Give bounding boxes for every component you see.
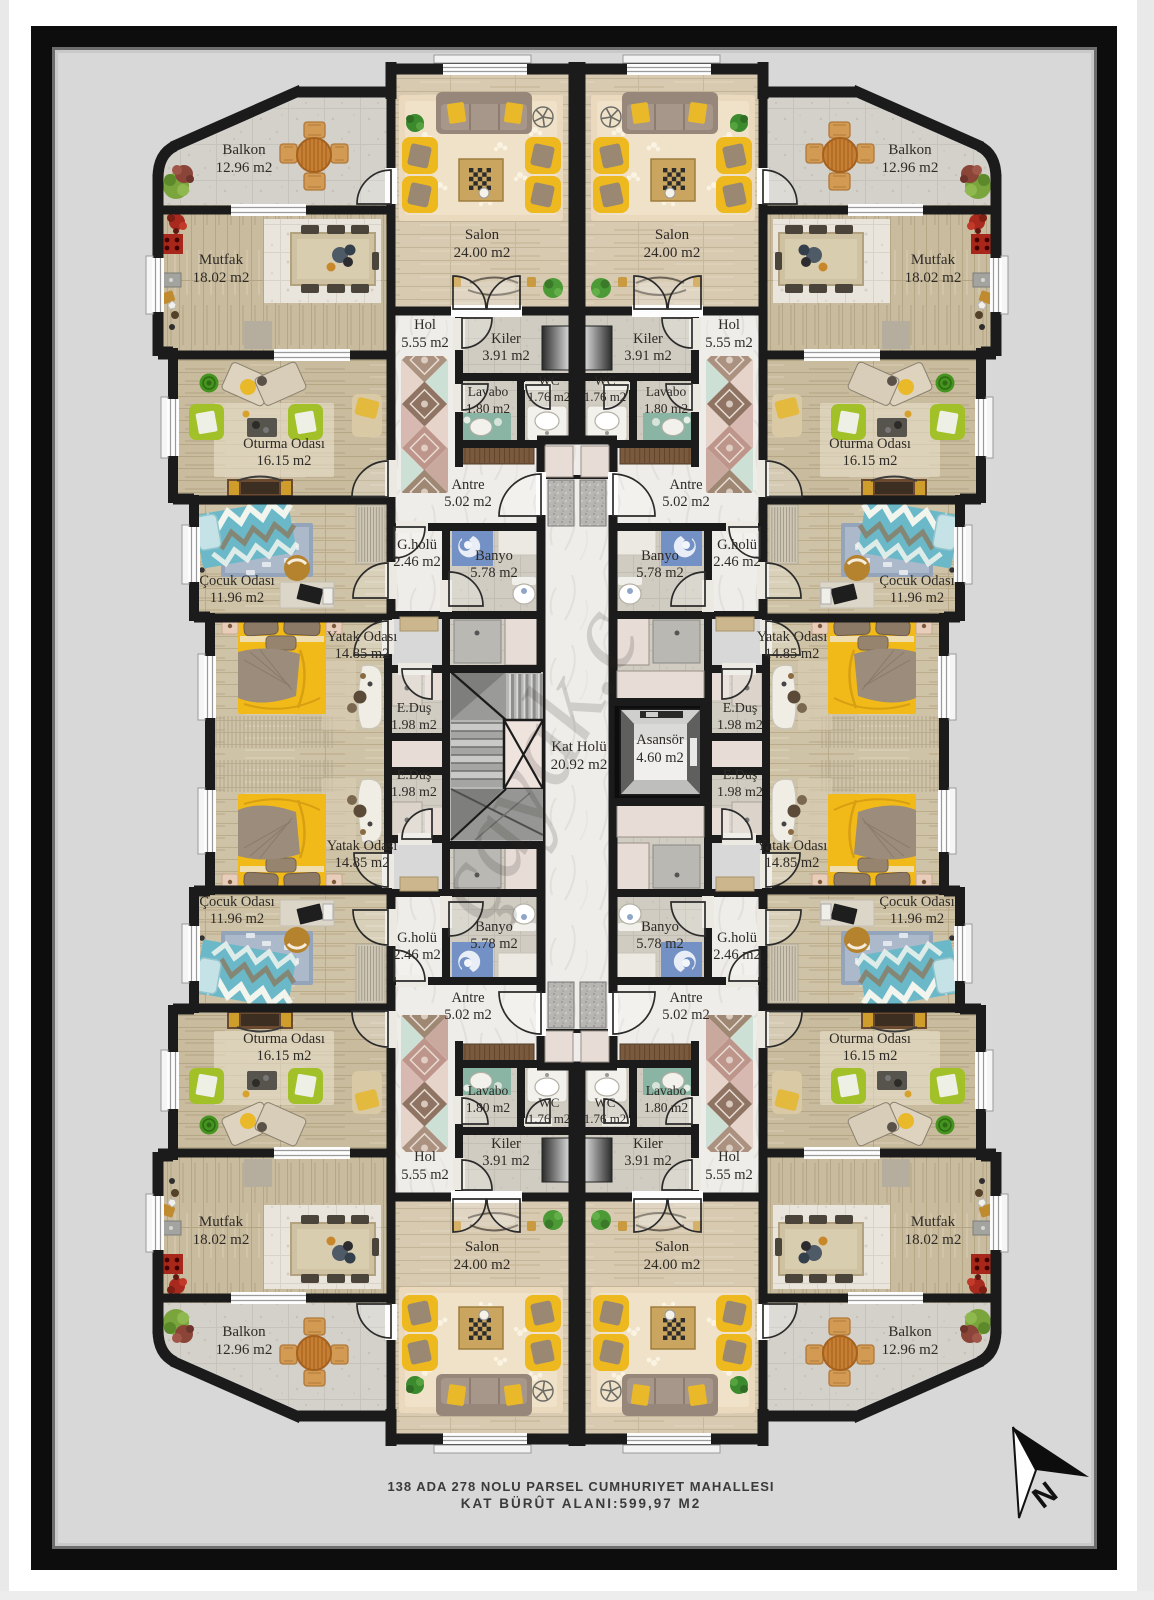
svg-text:Oturma Odası: Oturma Odası bbox=[829, 1031, 911, 1047]
svg-text:Balkon: Balkon bbox=[222, 142, 266, 158]
svg-text:Oturma Odası: Oturma Odası bbox=[243, 436, 325, 452]
svg-text:14.85 m2: 14.85 m2 bbox=[335, 855, 390, 871]
svg-text:16.15 m2: 16.15 m2 bbox=[843, 453, 898, 469]
svg-text:Hol: Hol bbox=[718, 317, 740, 333]
svg-text:138 ADA 278 NOLU PARSEL CUMHUR: 138 ADA 278 NOLU PARSEL CUMHURIYET MAHAL… bbox=[387, 1479, 774, 1494]
svg-text:11.96 m2: 11.96 m2 bbox=[210, 911, 264, 927]
svg-text:5.02 m2: 5.02 m2 bbox=[444, 1007, 492, 1023]
svg-text:1.76 m2: 1.76 m2 bbox=[584, 1111, 627, 1126]
svg-text:Hol: Hol bbox=[718, 1149, 740, 1165]
svg-text:Antre: Antre bbox=[669, 990, 702, 1006]
svg-text:Hol: Hol bbox=[414, 1149, 436, 1165]
svg-text:E.Duş: E.Duş bbox=[723, 701, 758, 716]
svg-text:Kiler: Kiler bbox=[491, 1136, 521, 1152]
svg-text:5.02 m2: 5.02 m2 bbox=[444, 494, 492, 510]
svg-text:Antre: Antre bbox=[669, 477, 702, 493]
svg-text:12.96 m2: 12.96 m2 bbox=[216, 1342, 273, 1358]
svg-text:Yatak Odası: Yatak Odası bbox=[757, 629, 828, 645]
svg-text:Balkon: Balkon bbox=[222, 1324, 266, 1340]
svg-text:1.98 m2: 1.98 m2 bbox=[391, 785, 437, 800]
svg-text:Salon: Salon bbox=[465, 227, 500, 243]
svg-text:1.98 m2: 1.98 m2 bbox=[717, 785, 763, 800]
svg-text:Çocuk Odası: Çocuk Odası bbox=[199, 573, 274, 589]
svg-text:5.55 m2: 5.55 m2 bbox=[705, 1167, 753, 1183]
svg-text:Balkon: Balkon bbox=[888, 142, 932, 158]
svg-text:Balkon: Balkon bbox=[888, 1324, 932, 1340]
svg-text:WC: WC bbox=[595, 1095, 616, 1110]
svg-text:Lavabo: Lavabo bbox=[468, 384, 509, 399]
svg-text:12.96 m2: 12.96 m2 bbox=[882, 1342, 939, 1358]
svg-text:1.80 m2: 1.80 m2 bbox=[466, 1100, 510, 1115]
svg-text:Oturma Odası: Oturma Odası bbox=[829, 436, 911, 452]
svg-text:4.60 m2: 4.60 m2 bbox=[636, 750, 684, 766]
svg-text:E.Duş: E.Duş bbox=[397, 768, 432, 783]
svg-text:16.15 m2: 16.15 m2 bbox=[257, 1048, 312, 1064]
svg-text:3.91 m2: 3.91 m2 bbox=[482, 348, 530, 364]
svg-text:18.02 m2: 18.02 m2 bbox=[905, 1232, 962, 1248]
svg-text:Kiler: Kiler bbox=[633, 331, 663, 347]
svg-text:WC: WC bbox=[539, 373, 560, 388]
svg-text:E.Duş: E.Duş bbox=[397, 701, 432, 716]
svg-text:E.Duş: E.Duş bbox=[723, 768, 758, 783]
svg-text:14.85 m2: 14.85 m2 bbox=[335, 646, 390, 662]
svg-text:Salon: Salon bbox=[465, 1239, 500, 1255]
svg-text:1.76 m2: 1.76 m2 bbox=[528, 1111, 571, 1126]
svg-text:5.78 m2: 5.78 m2 bbox=[470, 936, 518, 952]
svg-text:18.02 m2: 18.02 m2 bbox=[193, 1232, 250, 1248]
svg-text:Oturma Odası: Oturma Odası bbox=[243, 1031, 325, 1047]
svg-text:Hol: Hol bbox=[414, 317, 436, 333]
svg-text:12.96 m2: 12.96 m2 bbox=[216, 160, 273, 176]
svg-text:14.85 m2: 14.85 m2 bbox=[765, 855, 820, 871]
svg-text:Yatak Odası: Yatak Odası bbox=[327, 629, 398, 645]
svg-text:WC: WC bbox=[539, 1095, 560, 1110]
svg-text:Lavabo: Lavabo bbox=[646, 384, 687, 399]
svg-text:5.55 m2: 5.55 m2 bbox=[705, 335, 753, 351]
svg-text:24.00 m2: 24.00 m2 bbox=[644, 245, 701, 261]
svg-text:Banyo: Banyo bbox=[641, 919, 679, 935]
svg-text:24.00 m2: 24.00 m2 bbox=[644, 1257, 701, 1273]
svg-text:Salon: Salon bbox=[655, 1239, 690, 1255]
svg-text:Lavabo: Lavabo bbox=[646, 1083, 687, 1098]
svg-text:Mutfak: Mutfak bbox=[911, 1214, 956, 1230]
svg-text:Çocuk Odası: Çocuk Odası bbox=[879, 894, 954, 910]
svg-text:1.80 m2: 1.80 m2 bbox=[466, 401, 510, 416]
svg-text:Kat Holü: Kat Holü bbox=[551, 739, 607, 755]
svg-text:Çocuk Odası: Çocuk Odası bbox=[879, 573, 954, 589]
svg-text:Banyo: Banyo bbox=[475, 919, 513, 935]
svg-text:KAT BÜRÛT ALANI:599,97 M2: KAT BÜRÛT ALANI:599,97 M2 bbox=[461, 1496, 702, 1511]
svg-text:11.96 m2: 11.96 m2 bbox=[890, 911, 944, 927]
svg-text:Lavabo: Lavabo bbox=[468, 1083, 509, 1098]
svg-text:Antre: Antre bbox=[451, 990, 484, 1006]
svg-text:16.15 m2: 16.15 m2 bbox=[843, 1048, 898, 1064]
svg-text:1.80 m2: 1.80 m2 bbox=[644, 1100, 688, 1115]
svg-text:3.91 m2: 3.91 m2 bbox=[482, 1153, 530, 1169]
svg-text:20.92 m2: 20.92 m2 bbox=[551, 757, 608, 773]
svg-text:2.46 m2: 2.46 m2 bbox=[713, 554, 761, 570]
svg-text:1.80 m2: 1.80 m2 bbox=[644, 401, 688, 416]
svg-text:2.46 m2: 2.46 m2 bbox=[713, 947, 761, 963]
svg-text:G.holü: G.holü bbox=[717, 537, 757, 553]
svg-text:18.02 m2: 18.02 m2 bbox=[193, 270, 250, 286]
svg-text:Yatak Odası: Yatak Odası bbox=[327, 838, 398, 854]
svg-text:1.98 m2: 1.98 m2 bbox=[391, 718, 437, 733]
svg-text:3.91 m2: 3.91 m2 bbox=[624, 348, 672, 364]
svg-text:5.55 m2: 5.55 m2 bbox=[401, 1167, 449, 1183]
svg-text:G.holü: G.holü bbox=[717, 930, 757, 946]
svg-text:G.holü: G.holü bbox=[397, 930, 437, 946]
svg-text:11.96 m2: 11.96 m2 bbox=[890, 590, 944, 606]
svg-text:Yatak Odası: Yatak Odası bbox=[757, 838, 828, 854]
svg-text:5.78 m2: 5.78 m2 bbox=[636, 936, 684, 952]
svg-text:24.00 m2: 24.00 m2 bbox=[454, 1257, 511, 1273]
svg-text:Kiler: Kiler bbox=[491, 331, 521, 347]
svg-text:Mutfak: Mutfak bbox=[199, 1214, 244, 1230]
svg-text:24.00 m2: 24.00 m2 bbox=[454, 245, 511, 261]
svg-text:5.55 m2: 5.55 m2 bbox=[401, 335, 449, 351]
svg-text:2.46 m2: 2.46 m2 bbox=[393, 554, 441, 570]
svg-text:16.15 m2: 16.15 m2 bbox=[257, 453, 312, 469]
svg-text:1.98 m2: 1.98 m2 bbox=[717, 718, 763, 733]
svg-text:14.85 m2: 14.85 m2 bbox=[765, 646, 820, 662]
svg-text:Mutfak: Mutfak bbox=[911, 252, 956, 268]
svg-text:WC: WC bbox=[595, 373, 616, 388]
svg-text:3.91 m2: 3.91 m2 bbox=[624, 1153, 672, 1169]
svg-text:Kiler: Kiler bbox=[633, 1136, 663, 1152]
svg-text:Mutfak: Mutfak bbox=[199, 252, 244, 268]
svg-text:1.76 m2: 1.76 m2 bbox=[584, 389, 627, 404]
svg-text:5.78 m2: 5.78 m2 bbox=[470, 565, 518, 581]
svg-text:5.02 m2: 5.02 m2 bbox=[662, 494, 710, 510]
svg-text:Banyo: Banyo bbox=[475, 548, 513, 564]
svg-text:Antre: Antre bbox=[451, 477, 484, 493]
svg-text:11.96 m2: 11.96 m2 bbox=[210, 590, 264, 606]
svg-text:1.76 m2: 1.76 m2 bbox=[528, 389, 571, 404]
svg-text:18.02 m2: 18.02 m2 bbox=[905, 270, 962, 286]
svg-text:12.96 m2: 12.96 m2 bbox=[882, 160, 939, 176]
svg-text:Salon: Salon bbox=[655, 227, 690, 243]
svg-text:Çocuk Odası: Çocuk Odası bbox=[199, 894, 274, 910]
svg-text:Asansör: Asansör bbox=[636, 732, 684, 748]
svg-text:2.46 m2: 2.46 m2 bbox=[393, 947, 441, 963]
svg-text:5.78 m2: 5.78 m2 bbox=[636, 565, 684, 581]
svg-text:G.holü: G.holü bbox=[397, 537, 437, 553]
svg-text:5.02 m2: 5.02 m2 bbox=[662, 1007, 710, 1023]
svg-text:Banyo: Banyo bbox=[641, 548, 679, 564]
